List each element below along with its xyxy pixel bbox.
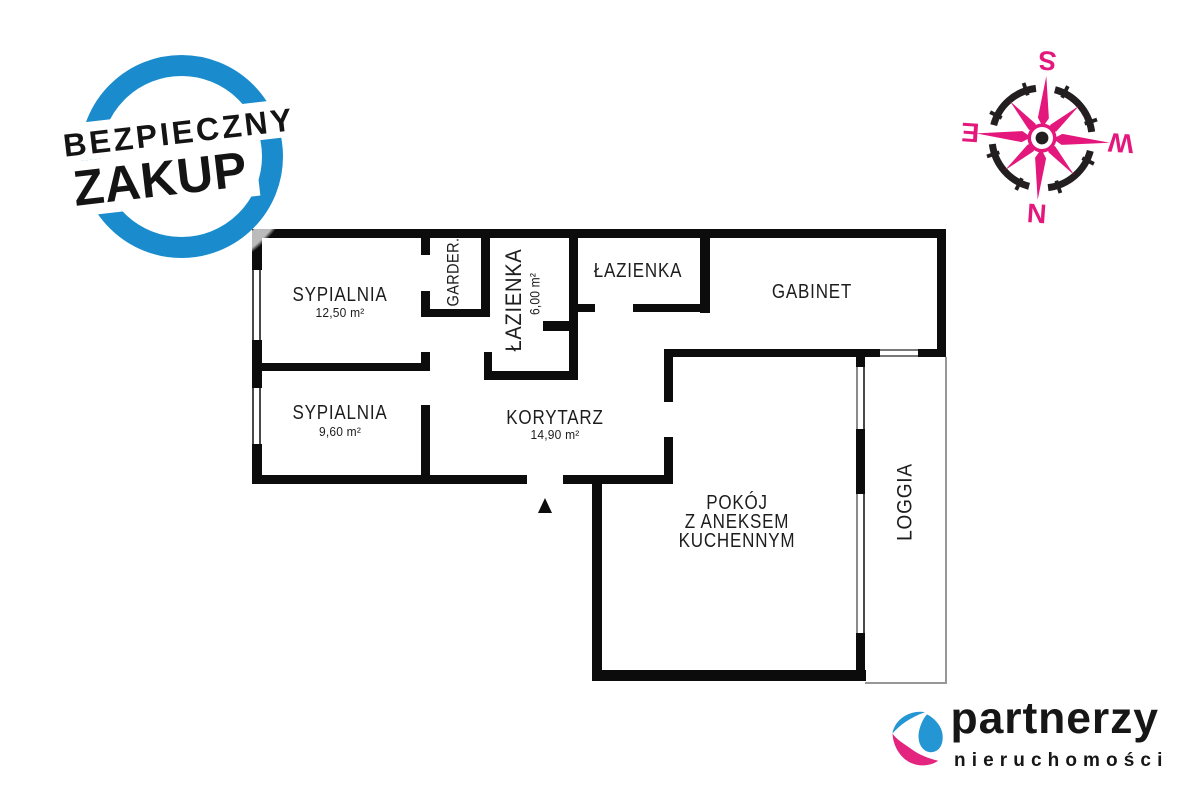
svg-text:S: S <box>1037 45 1057 76</box>
svg-text:E: E <box>960 117 980 148</box>
svg-text:N: N <box>1026 197 1048 228</box>
svg-text:W: W <box>1107 127 1135 159</box>
